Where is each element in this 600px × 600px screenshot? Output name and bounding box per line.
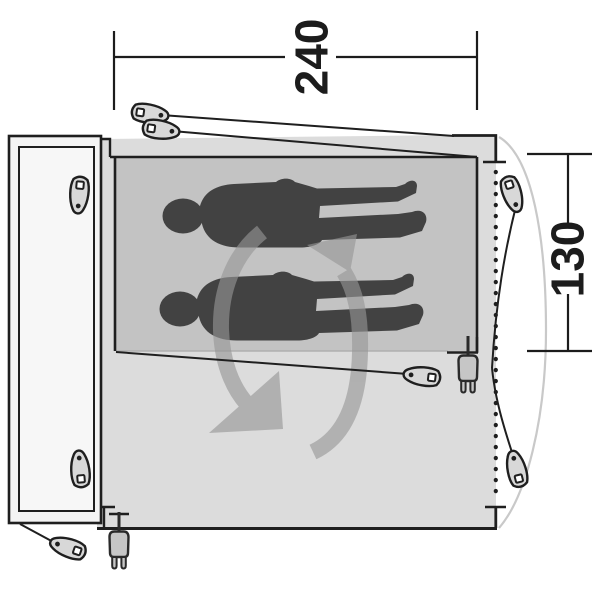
tent-peg-icon-right-bottom <box>503 449 530 489</box>
diagram-canvas: 240 130 <box>0 0 600 600</box>
tent-peg-icon-top-2 <box>142 118 181 141</box>
tent-peg-icon-right-top <box>498 174 527 215</box>
dimension-depth: 130 <box>527 154 594 351</box>
dim-width-label: 240 <box>286 19 338 96</box>
tent-peg-icon-bottom-left <box>47 533 88 562</box>
dimension-width: 240 <box>114 19 477 110</box>
tent-floorplan-diagram: 240 130 <box>0 0 600 600</box>
dim-depth-label: 130 <box>542 221 594 298</box>
